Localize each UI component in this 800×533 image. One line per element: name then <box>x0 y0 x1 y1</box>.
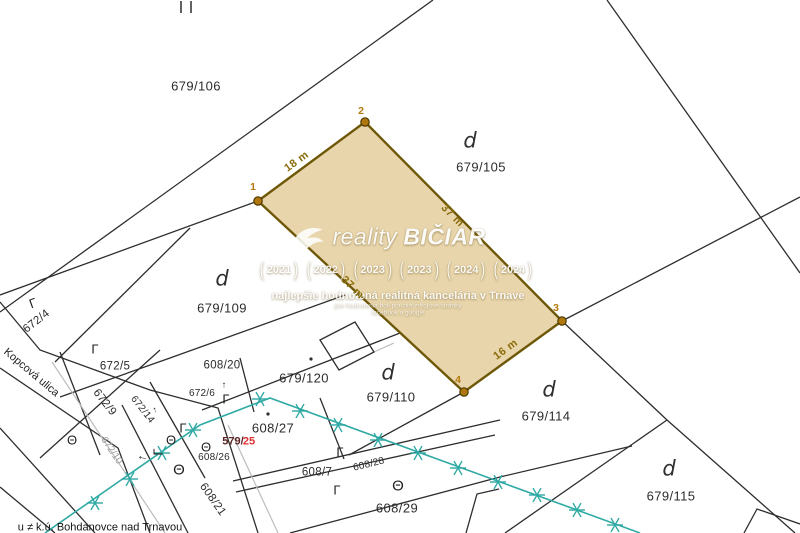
land-use-symbol-gamma: Γ <box>91 343 98 356</box>
land-use-letter-d: d <box>215 269 228 290</box>
land-use-symbol-gamma: Γ <box>336 446 343 459</box>
land-use-symbol-theta: Θ <box>67 434 77 447</box>
land-use-symbol-theta: Θ <box>173 463 185 478</box>
corner-marker-dot <box>558 317 566 325</box>
land-use-letter-d: d <box>463 131 476 152</box>
land-use-symbol-gamma: Γ <box>152 448 165 455</box>
corner-point-label-1: 1 <box>250 182 256 193</box>
parcel-number-579-25-red: 25 <box>243 437 255 448</box>
parcel-number-608-7: 608/7 <box>302 467 332 479</box>
parcel-number-579-25-prefix: 579/ <box>222 437 243 448</box>
parcel-number-608-29: 608/29 <box>376 502 418 515</box>
parcel-number-608-20: 608/20 <box>204 360 241 372</box>
parcel-number-608-26: 608/26 <box>198 453 230 463</box>
parcel-number-679-115: 679/115 <box>647 490 696 503</box>
land-use-symbol-theta: Θ <box>392 479 404 494</box>
parcel-number-608-27: 608/27 <box>252 422 294 435</box>
parcel-number-679-114: 679/114 <box>522 410 571 423</box>
land-use-symbol-theta: Θ <box>201 441 211 454</box>
direction-arrow-up: ↑ <box>222 381 227 390</box>
corner-point-label-3: 3 <box>553 303 559 314</box>
land-use-letter-d: d <box>381 363 394 384</box>
parcel-number-679-109: 679/109 <box>197 302 247 315</box>
cadastral-boundary-note: u ≠ k.ú. Bohdanovce nad Trnavou <box>18 523 182 533</box>
double-hash-icon <box>181 1 191 13</box>
parcel-number-672-5: 672/5 <box>100 361 130 373</box>
land-use-letter-d: d <box>542 380 555 401</box>
cadastral-map: realityBIČIAR 202120222023202320242024 n… <box>0 0 800 533</box>
corner-marker-dot <box>254 197 262 205</box>
land-use-letter-d: d <box>662 459 675 480</box>
land-use-symbol-gamma: Γ <box>179 422 186 435</box>
land-use-symbol-theta: Θ <box>166 434 176 447</box>
parcel-number-679-110: 679/110 <box>367 391 416 404</box>
survey-dot <box>266 412 269 415</box>
parcel-number-672-6: 672/6 <box>189 389 215 399</box>
corner-point-label-2: 2 <box>358 106 364 117</box>
direction-arrow-left: ← <box>136 449 150 463</box>
land-use-symbol-gamma: Γ <box>333 484 340 497</box>
corner-point-label-4: 4 <box>455 375 461 386</box>
land-use-symbol-gamma: Γ <box>222 393 229 406</box>
building-footprint <box>266 322 374 416</box>
parcel-number-679-105: 679/105 <box>456 161 506 174</box>
corner-marker-dot <box>361 118 369 126</box>
corner-marker-dot <box>460 388 468 396</box>
survey-dot <box>309 357 312 360</box>
parcel-number-679-106: 679/106 <box>171 80 221 93</box>
parcel-number-679-120: 679/120 <box>279 372 329 385</box>
